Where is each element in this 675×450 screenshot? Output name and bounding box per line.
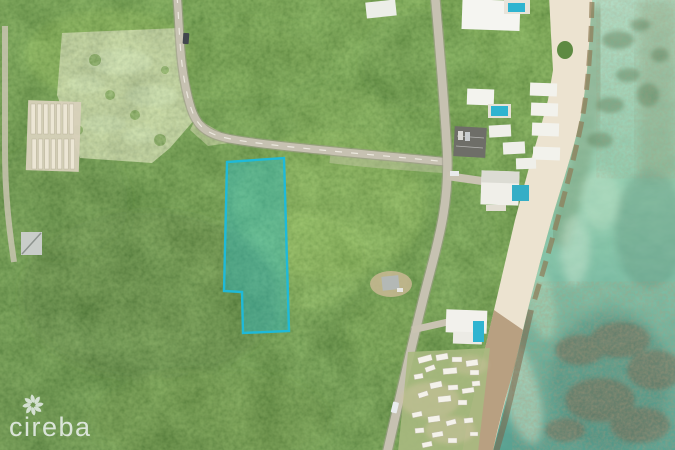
parking-lot bbox=[453, 126, 487, 158]
nursery-structure bbox=[26, 100, 81, 172]
cemetery bbox=[398, 348, 490, 450]
small-house-west bbox=[21, 232, 42, 255]
car-on-interior-road bbox=[183, 33, 190, 44]
aerial-photo: cireba bbox=[0, 0, 675, 450]
aerial-photo-canvas bbox=[0, 0, 675, 450]
forest-shed bbox=[370, 271, 412, 297]
house-top-west bbox=[365, 0, 397, 19]
dune-vegetation bbox=[557, 41, 573, 59]
